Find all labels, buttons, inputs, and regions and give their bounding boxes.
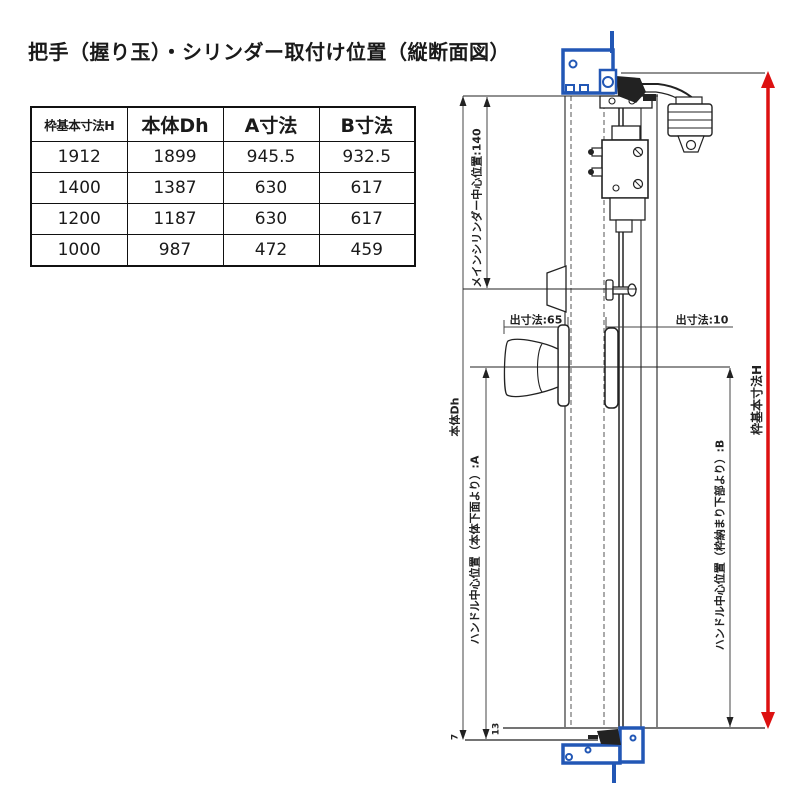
label-handle-center-b: ハンドル中心位置（枠納まり下部より）:B <box>715 440 726 651</box>
dimension-arrowheads <box>460 96 734 740</box>
lock-case <box>589 126 649 232</box>
top-frame-profile <box>563 31 616 93</box>
section-drawing <box>0 0 800 800</box>
dimension-lines <box>463 96 733 739</box>
label-dim-7: 7 <box>452 734 461 740</box>
label-handle-center-a: ハンドル中心位置（本体下面より）:A <box>470 456 481 645</box>
label-main-cylinder-center: メインシリンダー中心位置:140 <box>472 128 483 287</box>
label-frame-h: 枠基本寸法H <box>751 365 763 435</box>
label-protrusion-65: 出寸法:65 <box>510 315 563 326</box>
label-dim-13: 13 <box>493 723 502 736</box>
label-protrusion-10: 出寸法:10 <box>676 315 729 326</box>
center-lines <box>463 289 730 367</box>
label-body-dh: 本体Dh <box>450 398 461 437</box>
bottom-pivot-part <box>588 729 621 745</box>
